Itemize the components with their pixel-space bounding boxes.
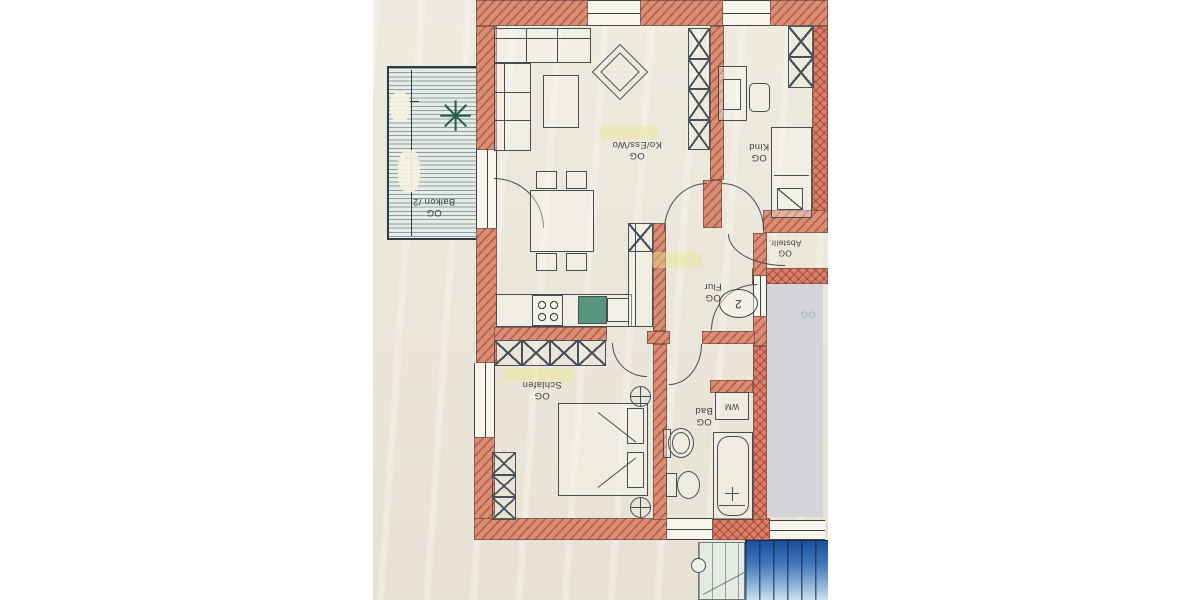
room-floor: OG — [397, 206, 471, 217]
window — [667, 518, 712, 540]
bathtub-basin — [717, 436, 749, 516]
shelf-cell — [492, 497, 516, 520]
wardrobe-child — [788, 26, 814, 88]
kitchen-sink — [578, 296, 607, 324]
bathtub-line — [719, 505, 745, 506]
highlight-mark — [652, 252, 702, 268]
room-name: Abstellr. — [752, 238, 818, 248]
wardrobe-bedroom-top — [494, 340, 606, 366]
room-floor: OG — [595, 149, 679, 160]
chair — [536, 253, 557, 271]
paper-blotch — [390, 92, 410, 122]
sink-drainer — [607, 298, 629, 322]
scan-background: ✳ OG Balkon /2 — [0, 0, 1200, 600]
shelf-cell — [688, 28, 710, 59]
wall-segment — [640, 0, 723, 26]
bed-blanket-line — [774, 175, 809, 176]
wall-brick — [812, 26, 828, 232]
room-floor: OG — [739, 151, 779, 162]
apartment-number-badge: 2 — [719, 289, 758, 318]
room-name: Bad — [682, 404, 726, 415]
shelf-cell — [494, 340, 522, 366]
toilet-bowl — [677, 471, 700, 499]
shelf-cell — [550, 340, 578, 366]
room-label-child: OG Kind — [739, 140, 779, 163]
room-floor: OG — [682, 415, 726, 426]
shelf-cell — [788, 26, 814, 57]
plant-icon: ✳ — [438, 96, 473, 138]
nightstand-mark — [630, 386, 651, 407]
washbasin — [668, 428, 694, 458]
stairs-newel — [691, 558, 706, 573]
shelf-cell — [788, 57, 814, 88]
armchair-cushion — [600, 52, 640, 92]
room-label-balcony: OG Balkon /2 — [397, 195, 471, 218]
shelf-cell — [492, 452, 516, 475]
bathtub — [713, 432, 753, 520]
shelf-cell — [628, 223, 653, 252]
wall-segment — [647, 331, 670, 344]
wall-brick — [712, 518, 770, 540]
window — [588, 0, 640, 26]
dining-table — [530, 190, 594, 252]
wall-segment — [653, 223, 666, 331]
wall-segment — [476, 0, 588, 26]
stairs-blue — [745, 540, 828, 600]
shelf-cell — [688, 59, 710, 90]
washbasin-bowl — [672, 432, 690, 454]
room-floor: OG — [794, 308, 822, 319]
desk-chair — [749, 83, 770, 112]
shelf-cell — [578, 340, 606, 366]
room-name: Kind — [739, 140, 779, 151]
shelf-cell — [688, 89, 710, 120]
washing-machine-label: WM — [725, 402, 739, 411]
window — [770, 520, 825, 540]
bathtub-tap — [732, 487, 733, 501]
wall-segment — [494, 327, 607, 341]
room-name: Flur — [694, 280, 732, 291]
chair — [536, 171, 557, 189]
room-name: Schlafen — [510, 378, 574, 389]
apartment-number: 2 — [735, 297, 742, 311]
desk-monitor — [723, 79, 741, 110]
sofa-horizontal — [494, 28, 591, 63]
coffee-table — [543, 75, 579, 128]
chair — [566, 171, 587, 189]
nightstand-mark — [630, 497, 651, 518]
room-label-living: OG Ko/Ess/Wo — [595, 138, 679, 161]
sofa-vertical — [494, 63, 531, 151]
shelf-cell — [522, 340, 550, 366]
wall-brick — [753, 346, 767, 520]
room-floor: OG — [510, 389, 574, 400]
room-floor: OG — [752, 248, 818, 258]
paper-blotch — [398, 150, 420, 192]
wardrobe-bedroom-left — [492, 452, 516, 520]
shelf-cell — [688, 120, 710, 151]
bed-pillow — [777, 188, 803, 210]
room-label-storage: OG Abstellr. — [752, 238, 818, 258]
room-name: Balkon /2 — [397, 195, 471, 206]
wardrobe-shelf — [688, 28, 710, 150]
room-label-bath: OG Bad — [682, 404, 726, 427]
chair — [566, 253, 587, 271]
wall-segment — [702, 331, 755, 344]
wall-segment — [770, 0, 828, 26]
shelf-cell — [492, 475, 516, 498]
stairwell-label: OG — [794, 308, 822, 319]
room-label-bedroom: OG Schlafen — [510, 378, 574, 401]
room-name: Ko/Ess/Wo — [595, 138, 679, 149]
window — [474, 363, 495, 437]
window — [723, 0, 770, 26]
toilet-tank — [666, 473, 677, 497]
hall-cabinet-top — [628, 223, 653, 252]
stove — [532, 295, 563, 326]
wall-segment — [474, 518, 667, 540]
